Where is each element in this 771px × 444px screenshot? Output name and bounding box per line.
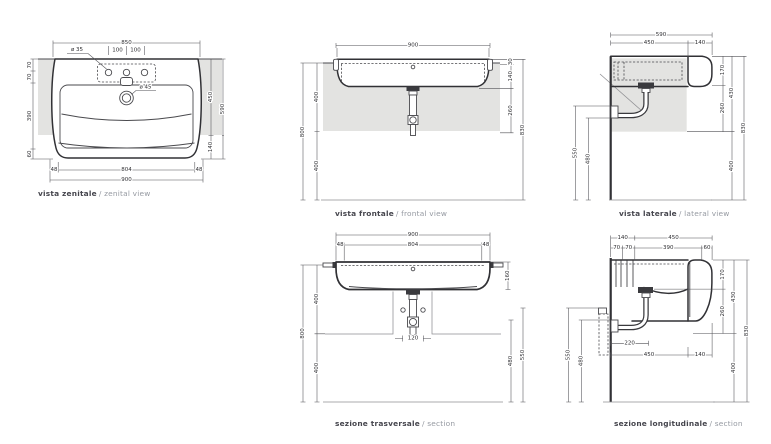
caption-english: / section <box>709 419 742 428</box>
dim-804: 804 <box>408 242 419 248</box>
dim-900: 900 <box>121 177 132 183</box>
frontal-caption: vista frontale/ frontal view <box>335 209 447 218</box>
dim-400: 400 <box>731 362 737 373</box>
drain-nut <box>409 295 417 300</box>
dim-480: 480 <box>585 153 591 164</box>
caption-italian: vista zenitale <box>38 189 97 198</box>
transversal-caption: sezione trasversale/ section <box>335 419 455 428</box>
dim-48b: 48 <box>482 242 489 248</box>
caption-italian: sezione longitudinale <box>614 419 707 428</box>
dim-400b: 400 <box>314 160 320 171</box>
dim-400b: 400 <box>314 362 320 373</box>
dim-70b: 70 <box>27 73 33 80</box>
dim-800: 800 <box>300 126 306 137</box>
dim-450: 450 <box>208 91 214 102</box>
lateral-caption: vista laterale/ lateral view <box>619 209 730 218</box>
dim-830: 830 <box>744 325 750 336</box>
dim-590: 590 <box>220 103 226 114</box>
trap-pipe-outer <box>614 298 646 328</box>
dim-48a: 48 <box>51 167 58 173</box>
caption-italian: vista laterale <box>619 209 677 218</box>
dim-590: 590 <box>656 32 667 38</box>
drain-flange <box>638 287 653 293</box>
caption-english: / frontal view <box>396 209 447 218</box>
dim-430: 430 <box>729 87 735 98</box>
dim-70b: 70 <box>625 245 632 251</box>
dim-170: 170 <box>720 64 726 75</box>
dim-140: 140 <box>508 71 514 82</box>
dim-140-bottom: 140 <box>695 352 706 358</box>
bracket-bar-right <box>492 263 503 267</box>
fixing-hole-left <box>401 308 405 312</box>
dim-480: 480 <box>508 355 514 366</box>
dim-260: 260 <box>508 105 514 116</box>
drain-hole-outer <box>120 91 134 105</box>
longitudinal-section-panel: 140 450 70 70 390 60 220 450 140 170 260… <box>548 228 771 440</box>
frontal-view-panel: 900 400 400 800 30 140 260 830 vista fro… <box>283 12 541 230</box>
dim-140: 140 <box>695 40 706 46</box>
dim-450-bottom: 450 <box>644 352 655 358</box>
dim-400a: 400 <box>314 91 320 102</box>
dim-dia35: ø 35 <box>71 47 84 53</box>
dim-400: 400 <box>729 160 735 171</box>
caption-english: / section <box>422 419 455 428</box>
dim-480: 480 <box>578 355 584 366</box>
dim-804: 804 <box>121 167 132 173</box>
zenital-view-panel: 850 100 100 ø 35 ø 45 70 70 390 60 450 1… <box>15 12 277 212</box>
drain-flange <box>407 87 420 92</box>
drain-tail <box>411 125 416 136</box>
dim-390: 390 <box>663 245 674 251</box>
bracket-bar-left <box>323 263 334 267</box>
sink-outline <box>337 59 489 86</box>
dim-830: 830 <box>520 124 526 135</box>
lateral-view-panel: 590 450 140 170 260 430 400 830 550 480 … <box>548 12 771 230</box>
dim-140: 140 <box>208 141 214 152</box>
faucet-hole-center <box>123 69 129 75</box>
dim-48a: 48 <box>337 242 344 248</box>
dim-260: 260 <box>720 306 726 317</box>
caption-italian: sezione trasversale <box>335 419 420 428</box>
technical-drawing-sheet: 850 100 100 ø 35 ø 45 70 70 390 60 450 1… <box>0 0 771 444</box>
dim-260: 260 <box>720 102 726 113</box>
wall-outlet-fitting <box>611 106 618 118</box>
dim-390: 390 <box>27 110 33 121</box>
front-apron-profile <box>688 56 712 86</box>
dim-70a: 70 <box>27 61 33 68</box>
bracket-left <box>334 59 339 70</box>
dim-48b: 48 <box>196 167 203 173</box>
dim-800: 800 <box>300 328 306 339</box>
dim-100a: 100 <box>112 48 123 54</box>
dim-900: 900 <box>408 43 419 49</box>
dim-60: 60 <box>704 245 711 251</box>
faucet-hole-left <box>105 69 111 75</box>
dim-220: 220 <box>624 340 635 346</box>
drain-nut <box>642 293 650 298</box>
dim-850: 850 <box>121 40 132 46</box>
drain-pipe <box>410 95 417 116</box>
dim-170: 170 <box>720 269 726 280</box>
caption-english: / zenital view <box>99 189 151 198</box>
dim-dia45: ø 45 <box>139 85 152 91</box>
drain-nut <box>409 91 417 95</box>
dim-100b: 100 <box>130 48 141 54</box>
faucet-hole-right <box>141 69 147 75</box>
caption-italian: vista frontale <box>335 209 394 218</box>
front-apron-profile <box>688 260 712 321</box>
longitudinal-caption: sezione longitudinale/ section <box>614 419 743 428</box>
fixing-hole-right <box>421 308 425 312</box>
dim-450-top: 450 <box>668 235 679 241</box>
outlet-cap <box>599 308 607 314</box>
dim-550: 550 <box>573 147 579 158</box>
dim-550: 550 <box>520 349 526 360</box>
transversal-section-panel: 900 48 804 48 120 400 400 800 160 480 55… <box>283 228 541 440</box>
drain-flange <box>638 83 654 89</box>
overflow-notch <box>121 78 133 86</box>
dim-900: 900 <box>408 232 419 238</box>
zenital-view-drawing: 850 100 100 ø 35 ø 45 70 70 390 60 450 1… <box>15 12 277 212</box>
caption-english: / lateral view <box>679 209 730 218</box>
frontal-view-drawing: 900 400 400 800 30 140 260 830 <box>283 12 541 230</box>
transversal-section-drawing: 900 48 804 48 120 400 400 800 160 480 55… <box>283 228 541 440</box>
dim-430: 430 <box>731 291 737 302</box>
bracket-right <box>488 59 493 70</box>
dim-140-top: 140 <box>617 235 628 241</box>
dim-450: 450 <box>644 40 655 46</box>
dim-60: 60 <box>27 150 33 157</box>
longitudinal-section-drawing: 140 450 70 70 390 60 220 450 140 170 260… <box>548 228 771 440</box>
dim-550: 550 <box>566 349 572 360</box>
drain-nut <box>642 89 650 93</box>
dim-70a: 70 <box>613 245 620 251</box>
dim-830: 830 <box>741 122 747 133</box>
dim-160: 160 <box>505 270 511 281</box>
zenital-caption: vista zenitale/ zenital view <box>38 189 150 198</box>
sink-section-outline <box>336 262 490 290</box>
dim-120: 120 <box>408 336 419 342</box>
dim-400a: 400 <box>314 293 320 304</box>
lateral-view-drawing: 590 450 140 170 260 430 400 830 550 480 <box>548 12 771 230</box>
drain-flange <box>406 290 420 295</box>
dim-30: 30 <box>508 58 514 65</box>
wall-outlet-fitting <box>611 320 618 332</box>
drain-tail <box>410 327 416 335</box>
drain-pipe <box>410 300 417 318</box>
